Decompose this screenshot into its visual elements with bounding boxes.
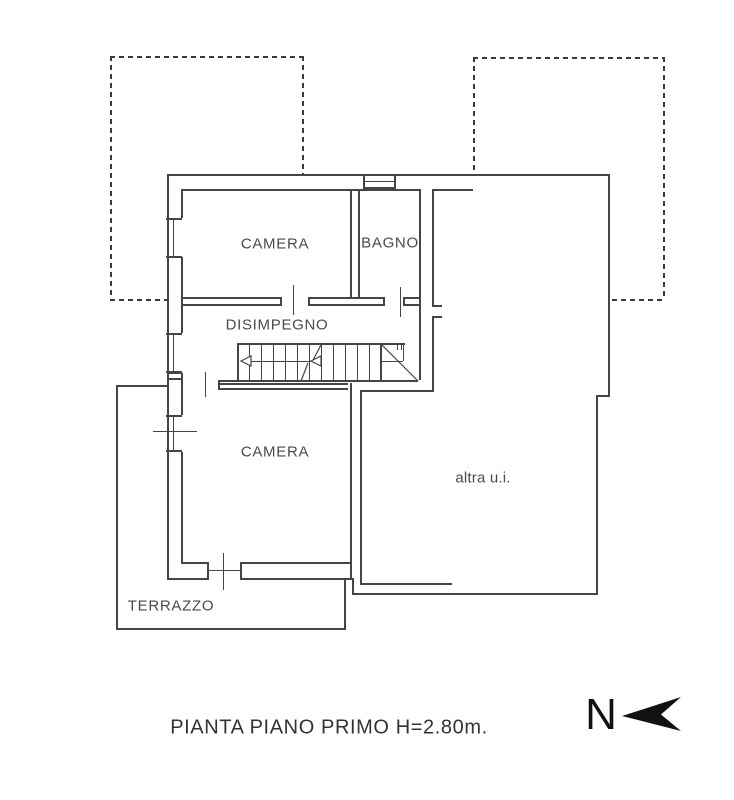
window3-sill-line <box>153 431 197 432</box>
wall-bagno-left <box>358 189 360 299</box>
flue-mid <box>363 181 395 182</box>
dashed-outline-a-top <box>110 56 302 58</box>
camera2-bottom-inner-a <box>181 562 207 564</box>
window1-tick-bottom <box>166 256 182 258</box>
stairs-left-edge <box>237 343 239 381</box>
camera2-door-stub-b <box>167 378 181 380</box>
stair-winder-edge <box>380 343 382 381</box>
terrazzo-right <box>344 578 346 630</box>
stair-winder-riser <box>403 343 404 361</box>
room-label-bagno: BAGNO <box>361 235 419 252</box>
camera2-right-inner <box>350 383 352 579</box>
stair-riser <box>309 343 310 381</box>
window1-tick-top <box>166 218 182 220</box>
camera2-top-cap <box>218 380 220 390</box>
window1-mullion <box>173 218 174 257</box>
window2-tick-top <box>166 333 182 335</box>
window3-tick-top <box>166 415 182 417</box>
dashed-outline-a-left <box>110 56 112 300</box>
dashed-outline-a-right <box>302 56 304 174</box>
stair-riser <box>321 343 322 381</box>
dashed-outline-b-right <box>663 57 665 300</box>
north-arrow-icon <box>622 697 681 731</box>
camera2-top-wall-b <box>218 388 348 390</box>
window3-tick-bottom <box>166 450 182 452</box>
band-cap-308 <box>308 297 310 306</box>
stair-break-mark-2 <box>301 363 308 381</box>
door-leaf-camera2 <box>205 372 206 397</box>
wall-left-inner-seg3 <box>181 373 183 415</box>
wall-face-y390 <box>360 390 434 392</box>
stair-riser <box>273 343 274 381</box>
band-right-bottom <box>403 304 419 306</box>
wall-top-inner-right <box>432 189 473 191</box>
wall-left-inner-seg2 <box>181 257 183 333</box>
room-label-disimpegno: DISIMPEGNO <box>226 317 329 334</box>
window4-mullion <box>207 570 241 571</box>
camera2-bottom-outer-b <box>240 578 352 580</box>
room-label-camera-2: CAMERA <box>241 444 309 461</box>
stair-arrowhead-2 <box>311 356 321 366</box>
plan-title: PIANTA PIANO PRIMO H=2.80m. <box>170 717 488 740</box>
band-right-top <box>403 297 419 299</box>
stair-riser <box>345 343 346 381</box>
wall-bagno-right <box>419 189 421 380</box>
wall-right-step <box>596 395 610 397</box>
flue-bottom <box>363 187 395 189</box>
band-camera1-top <box>181 297 280 299</box>
stair-handrail-tick2 <box>401 343 402 350</box>
wall-left-outer <box>167 174 169 580</box>
camera2-bottom-outer-a <box>167 578 207 580</box>
room-label-terrazzo: TERRAZZO <box>128 598 214 615</box>
band-mid-top <box>308 297 383 299</box>
altra-ledge-line <box>360 583 452 585</box>
window2-mullion <box>173 333 174 373</box>
camera2-bottom-inner-b <box>240 562 350 564</box>
window4-axis-line <box>223 553 224 590</box>
stair-riser <box>297 343 298 381</box>
window4-jamb-left <box>207 562 209 580</box>
room-label-camera-1: CAMERA <box>241 236 309 253</box>
terrazzo-top <box>116 385 167 387</box>
wall-left-inner-seg1 <box>181 189 183 218</box>
dashed-outline-a-bottom <box>110 299 167 301</box>
altra-door-jamb-top <box>432 305 442 307</box>
stair-riser <box>285 343 286 381</box>
stair-direction-line <box>247 361 311 362</box>
room-label-altra-ui: altra u.i. <box>455 470 510 487</box>
band-cap-403 <box>403 297 405 306</box>
dashed-outline-b-bottom <box>612 299 663 301</box>
stair-riser <box>249 343 250 381</box>
camera2-top-wall-a <box>218 383 348 385</box>
band-mid-bottom <box>308 304 383 306</box>
wall-camera1-right <box>350 189 352 299</box>
stair-winder-tread <box>380 361 403 362</box>
stair-riser <box>357 343 358 381</box>
wall-altra-left-upper <box>432 189 434 305</box>
stairs-bottom-edge <box>218 380 418 382</box>
wall-left-inner-seg4 <box>181 452 183 562</box>
stair-winder-diagonal <box>381 344 418 381</box>
band-cap-383 <box>383 297 385 306</box>
wall-altra-left-lower <box>432 318 434 390</box>
stair-handrail-tick1 <box>397 343 398 350</box>
terrazzo-bottom <box>116 628 346 630</box>
stair-riser <box>369 343 370 381</box>
wall-right-outer-upper <box>608 174 610 395</box>
window4-jamb-right <box>240 562 242 580</box>
wall-top-outer <box>167 174 608 176</box>
door-leaf-camera1 <box>293 285 294 315</box>
terrazzo-left <box>116 385 118 630</box>
camera2-door-stub-a <box>167 372 181 374</box>
camera2-right-outer <box>360 390 362 583</box>
wall-right-outer-lower <box>596 395 598 595</box>
wall-bottom-outer-right <box>352 593 598 595</box>
stair-riser <box>333 343 334 381</box>
door-leaf-bagno <box>400 287 401 317</box>
dashed-outline-b-top <box>473 57 663 59</box>
wall-top-inner-left <box>181 189 419 191</box>
dashed-outline-b-left <box>473 57 475 174</box>
floor-plan: CAMERA BAGNO DISIMPEGNO CAMERA TERRAZZO … <box>0 0 734 800</box>
band-camera1-bottom <box>181 304 280 306</box>
wall-352-lower <box>352 578 354 595</box>
window3-mullion <box>173 415 174 452</box>
stair-riser <box>261 343 262 381</box>
band-cap-280 <box>280 297 282 306</box>
north-letter: N <box>585 690 617 740</box>
